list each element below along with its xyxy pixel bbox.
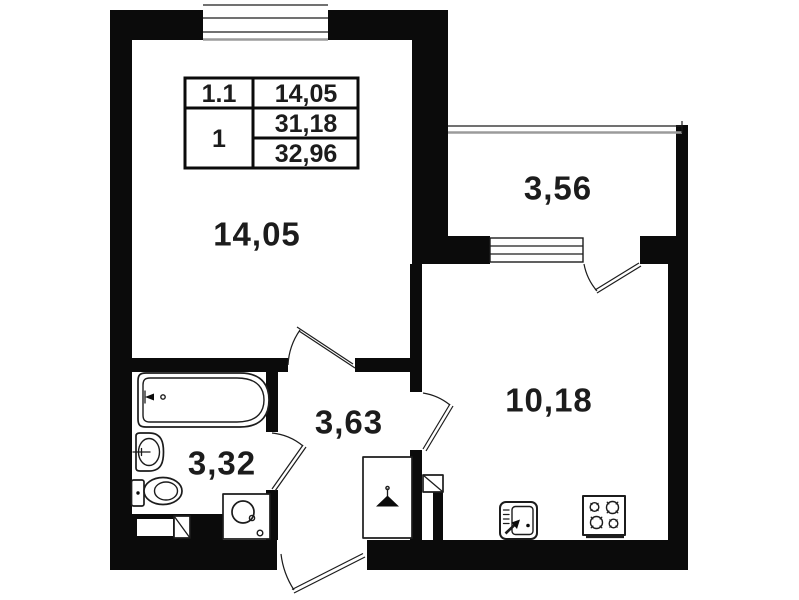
wardrobe bbox=[363, 457, 412, 538]
washing-machine-icon bbox=[223, 494, 270, 539]
floor-plan-drawing: 1.1 14,05 1 31,18 32,96 14,05 3,56 10,18… bbox=[0, 0, 799, 600]
door-living-hallway bbox=[288, 327, 355, 368]
floor-plan-page: 1.1 14,05 1 31,18 32,96 14,05 3,56 10,18… bbox=[0, 0, 799, 600]
unit-info-table: 1.1 14,05 1 31,18 32,96 bbox=[185, 78, 358, 168]
wall-living-bathroom bbox=[132, 358, 288, 372]
wash-basin-icon bbox=[133, 433, 164, 471]
total-area-value: 31,18 bbox=[275, 110, 338, 138]
stove-icon bbox=[583, 496, 625, 537]
balcony-area-label: 3,56 bbox=[524, 170, 592, 207]
door-entrance bbox=[281, 554, 365, 594]
wall-kitchen-duct bbox=[433, 492, 443, 540]
living-room-area-label: 14,05 bbox=[213, 216, 301, 253]
kitchen-sink-icon bbox=[500, 502, 537, 539]
door-arc-icon bbox=[272, 433, 303, 446]
wall-living-balcony bbox=[412, 10, 448, 238]
door-kitchen bbox=[423, 393, 453, 451]
exterior-wall-bottom-left bbox=[110, 540, 277, 570]
door-bathroom bbox=[272, 433, 306, 491]
unit-label: 1.1 bbox=[202, 80, 237, 108]
exterior-wall-right bbox=[668, 236, 688, 570]
duct-opening bbox=[137, 519, 173, 536]
rooms-count-value: 1 bbox=[212, 125, 226, 153]
door-arc-icon bbox=[288, 330, 300, 365]
kitchen-vent-shaft bbox=[423, 475, 443, 492]
living-area-value: 14,05 bbox=[275, 80, 338, 108]
window-opening bbox=[203, 0, 328, 40]
toilet-icon bbox=[132, 478, 183, 507]
total-area-with-balcony-value: 32,96 bbox=[275, 140, 338, 168]
kitchen-balcony-window bbox=[490, 238, 583, 262]
door-arc-icon bbox=[584, 264, 597, 291]
exterior-wall-bottom-right bbox=[367, 540, 688, 570]
living-room-window bbox=[203, 0, 328, 40]
door-balcony bbox=[584, 263, 641, 293]
kitchen-area-label: 10,18 bbox=[505, 382, 593, 419]
balcony-railing bbox=[448, 121, 682, 133]
window-icon bbox=[490, 238, 583, 262]
wall-balcony-kitchen-left bbox=[412, 236, 490, 264]
hallway-area-label: 3,63 bbox=[315, 404, 383, 441]
room-labels: 14,05 3,56 10,18 3,63 3,32 bbox=[188, 170, 593, 482]
wall-hallway-kitchen-top bbox=[410, 264, 422, 392]
bathroom-vents bbox=[137, 516, 190, 538]
bathtub-icon bbox=[138, 373, 269, 427]
exterior-wall-left bbox=[110, 10, 132, 570]
bathroom-area-label: 3,32 bbox=[188, 445, 256, 482]
door-arc-icon bbox=[281, 554, 294, 590]
door-arc-icon bbox=[423, 393, 450, 405]
balcony-wall-right bbox=[676, 125, 688, 238]
wall-living-hallway bbox=[355, 358, 412, 372]
